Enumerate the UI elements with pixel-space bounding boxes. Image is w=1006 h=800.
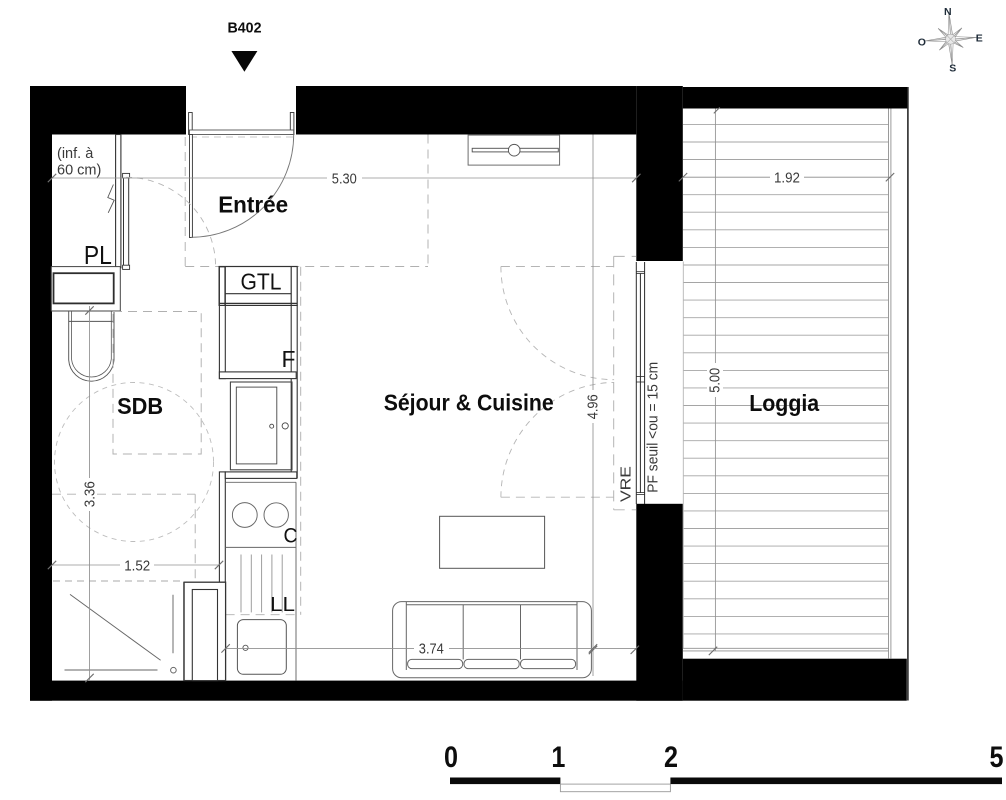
svg-text:SDB: SDB xyxy=(117,393,163,419)
svg-text:3.74: 3.74 xyxy=(419,642,444,658)
svg-text:5: 5 xyxy=(990,741,1004,774)
svg-text:O: O xyxy=(918,36,926,48)
svg-text:5.00: 5.00 xyxy=(708,368,724,393)
svg-text:Séjour & Cuisine: Séjour & Cuisine xyxy=(384,389,554,415)
svg-text:2: 2 xyxy=(664,741,678,774)
svg-text:Entrée: Entrée xyxy=(218,192,288,218)
svg-text:PF seuil <ou = 15 cm: PF seuil <ou = 15 cm xyxy=(646,362,662,493)
svg-text:PL: PL xyxy=(84,240,112,270)
svg-text:GTL: GTL xyxy=(241,269,282,295)
svg-text:0: 0 xyxy=(444,741,458,774)
svg-text:(inf. à: (inf. à xyxy=(57,146,94,162)
svg-text:Loggia: Loggia xyxy=(749,390,819,416)
svg-text:60 cm): 60 cm) xyxy=(57,163,101,179)
svg-text:1.92: 1.92 xyxy=(774,171,800,187)
svg-text:F: F xyxy=(282,346,296,372)
svg-text:C: C xyxy=(284,525,298,548)
svg-text:5.30: 5.30 xyxy=(332,171,357,187)
svg-text:N: N xyxy=(944,6,952,18)
svg-text:3.36: 3.36 xyxy=(83,481,99,507)
svg-text:4.96: 4.96 xyxy=(586,394,602,419)
svg-text:E: E xyxy=(976,32,983,44)
svg-text:LL: LL xyxy=(270,593,295,616)
svg-text:S: S xyxy=(949,63,956,75)
svg-text:B402: B402 xyxy=(228,20,262,37)
svg-text:1.52: 1.52 xyxy=(124,558,150,574)
svg-text:1: 1 xyxy=(551,741,565,774)
svg-text:VRE: VRE xyxy=(619,466,635,502)
